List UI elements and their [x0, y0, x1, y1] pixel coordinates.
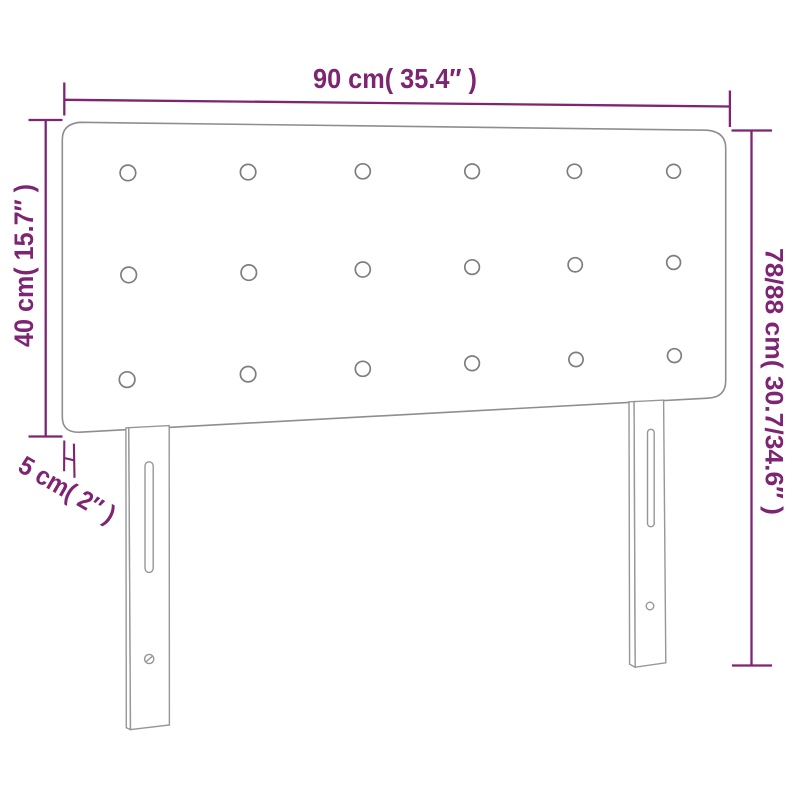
svg-text:40 cm( 15.7″ ): 40 cm( 15.7″ ) — [9, 184, 39, 347]
svg-text:78/88 cm( 30.7/34.6″ ): 78/88 cm( 30.7/34.6″ ) — [760, 248, 788, 515]
svg-text:5 cm( 2″ ): 5 cm( 2″ ) — [14, 450, 122, 529]
svg-text:90 cm( 35.4″ ): 90 cm( 35.4″ ) — [313, 63, 477, 94]
